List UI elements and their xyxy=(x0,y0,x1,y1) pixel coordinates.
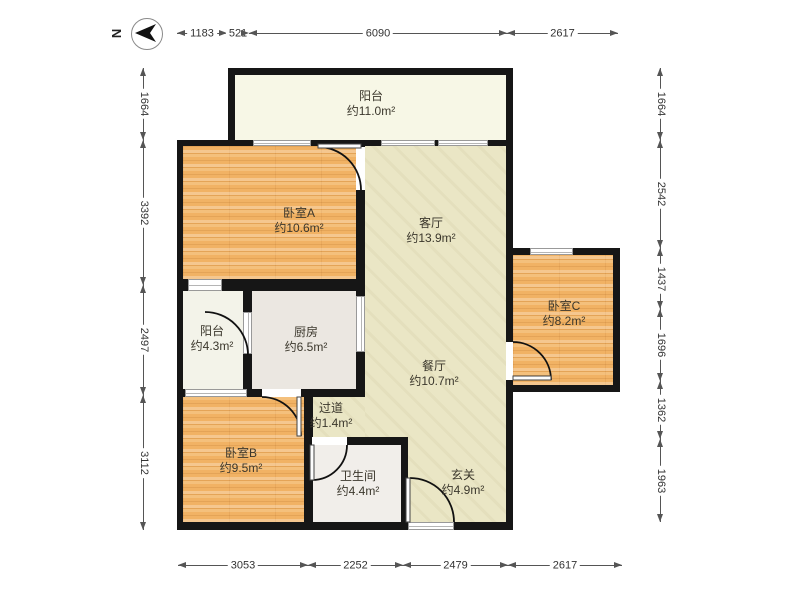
wall xyxy=(177,522,513,530)
wall xyxy=(506,140,513,530)
dimension-right-3: 1437 xyxy=(660,248,661,309)
room-label-kitchen: 厨房约6.5m² xyxy=(285,325,328,355)
window xyxy=(530,248,573,255)
room-label-bedroom-a: 卧室A约10.6m² xyxy=(274,206,323,236)
window xyxy=(253,140,311,146)
door-opening xyxy=(356,147,365,190)
room-label-bedroom-b: 卧室B约9.5m² xyxy=(220,446,263,476)
door-opening xyxy=(506,342,513,380)
room-label-entry: 玄关约4.9m² xyxy=(442,468,485,498)
dimension-top-1: 1183 xyxy=(177,33,227,34)
room-label-corridor: 过道约1.4m² xyxy=(310,401,353,431)
door-opening xyxy=(262,389,301,397)
window xyxy=(188,279,222,291)
dimension-top-3: 6090 xyxy=(249,33,507,34)
room-label-bathroom: 卫生间约4.4m² xyxy=(337,469,380,499)
door-opening xyxy=(243,312,252,354)
dimension-top-4: 2617 xyxy=(507,33,618,34)
window xyxy=(185,389,247,397)
dimension-bottom-3: 2479 xyxy=(403,565,508,566)
dimension-top-2: 521 xyxy=(227,33,249,34)
dimension-bottom-1: 3053 xyxy=(178,565,308,566)
dimension-right-2: 2542 xyxy=(660,140,661,248)
floor-plan: N xyxy=(0,0,800,600)
dimension-left-3: 2497 xyxy=(143,285,144,395)
north-label: N xyxy=(109,29,124,38)
dimension-right-6: 1963 xyxy=(660,439,661,522)
wall xyxy=(506,68,513,146)
dimension-right-5: 1362 xyxy=(660,381,661,439)
compass-circle xyxy=(131,18,163,50)
dimension-right-4: 1696 xyxy=(660,309,661,381)
dimension-left-1: 1664 xyxy=(143,68,144,140)
wall xyxy=(177,140,183,530)
dimension-left-2: 3392 xyxy=(143,140,144,285)
sliding-door-panel xyxy=(381,140,435,146)
room-label-balcony-small: 阳台约4.3m² xyxy=(191,324,234,354)
room-label-dining: 餐厅约10.7m² xyxy=(409,359,458,389)
sliding-door-panel xyxy=(438,140,488,146)
room-label-bedroom-c: 卧室C约8.2m² xyxy=(543,299,586,329)
room-floor-bedroom-a xyxy=(183,146,356,279)
dimension-bottom-2: 2252 xyxy=(308,565,403,566)
dimension-left-4: 3112 xyxy=(143,395,144,530)
wall xyxy=(613,248,620,392)
room-label-balcony-top: 阳台约11.0m² xyxy=(347,89,395,119)
sliding-door-panel xyxy=(356,296,365,352)
dimension-bottom-4: 2617 xyxy=(508,565,622,566)
wall xyxy=(228,68,513,75)
door-opening xyxy=(312,437,347,445)
wall xyxy=(401,437,408,530)
entry-door-threshold xyxy=(408,522,454,530)
wall xyxy=(506,385,620,392)
dimension-right-1: 1664 xyxy=(660,68,661,140)
room-label-living: 客厅约13.9m² xyxy=(406,216,455,246)
wall xyxy=(228,68,235,146)
